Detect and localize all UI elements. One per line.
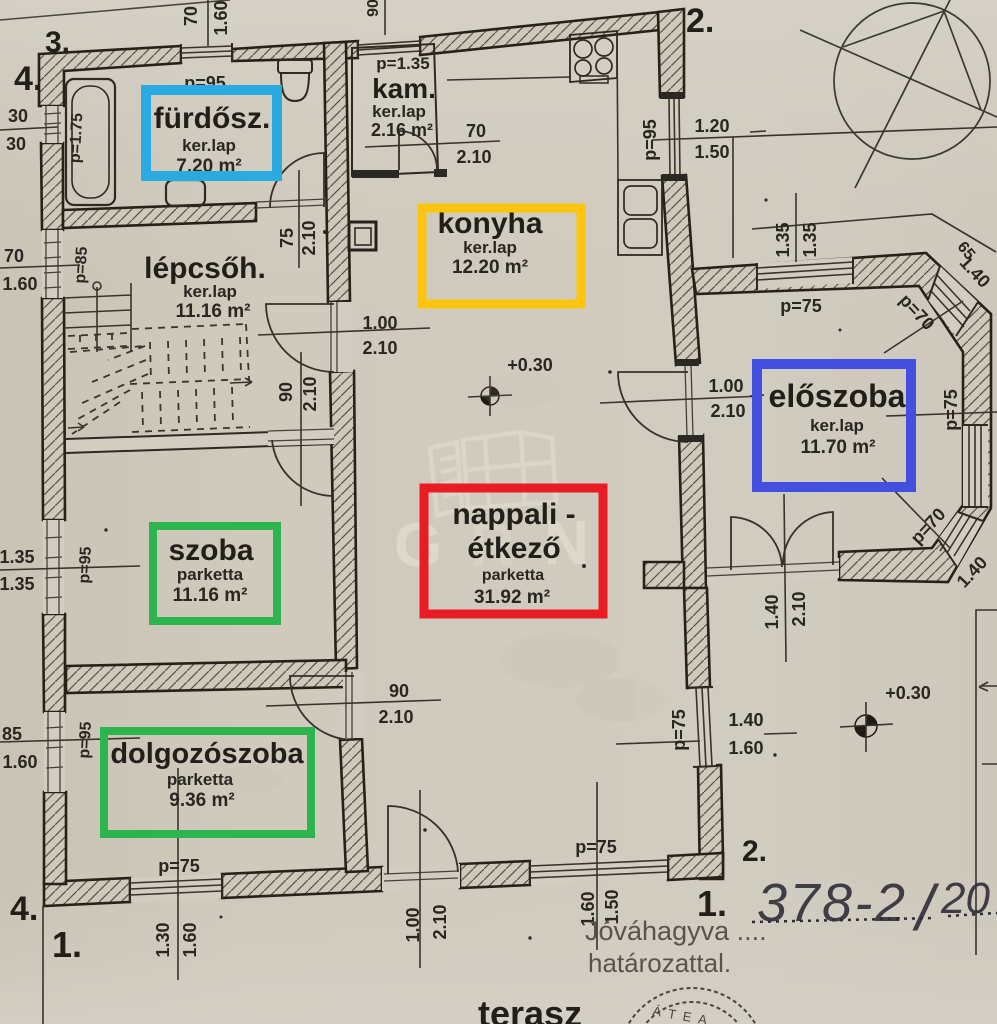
svg-text:+0.30: +0.30 <box>507 355 553 375</box>
svg-text:1.: 1. <box>52 924 82 965</box>
svg-text:p=95: p=95 <box>640 119 660 161</box>
svg-text:11.16 m²: 11.16 m² <box>173 585 248 606</box>
svg-text:lépcsőh.: lépcsőh. <box>144 252 266 285</box>
svg-text:parketta: parketta <box>177 565 244 584</box>
svg-text:85: 85 <box>2 724 22 744</box>
svg-text:2.10: 2.10 <box>456 147 491 167</box>
svg-text:2.10: 2.10 <box>789 591 809 626</box>
svg-text:parketta: parketta <box>482 567 544 584</box>
svg-text:1.30: 1.30 <box>153 922 173 957</box>
svg-text:határozattal.: határozattal. <box>588 948 731 978</box>
svg-text:1.60: 1.60 <box>2 752 37 772</box>
svg-text:70: 70 <box>4 246 24 266</box>
svg-text:fürdősz.: fürdősz. <box>154 102 271 135</box>
svg-text:étkező: étkező <box>467 532 560 565</box>
svg-text:2.10: 2.10 <box>300 376 320 411</box>
svg-text:nappali -: nappali - <box>452 498 575 531</box>
svg-text:378-2: 378-2 <box>757 873 905 933</box>
svg-text:kam.: kam. <box>372 73 436 104</box>
svg-text:p=75: p=75 <box>669 709 689 751</box>
svg-text:3.: 3. <box>45 26 70 59</box>
svg-text:G: G <box>394 511 442 580</box>
svg-text:ker.lap: ker.lap <box>183 282 237 301</box>
svg-text:dolgozószoba: dolgozószoba <box>110 738 304 770</box>
svg-text:1.00: 1.00 <box>403 907 423 942</box>
svg-text:1.40: 1.40 <box>762 594 782 629</box>
svg-text:p=1.35: p=1.35 <box>376 54 429 73</box>
svg-text:2.10: 2.10 <box>299 220 319 255</box>
svg-text:terasz: terasz <box>478 993 582 1024</box>
svg-text:2.10: 2.10 <box>378 707 413 727</box>
svg-text:70: 70 <box>181 6 201 26</box>
svg-text:1.00: 1.00 <box>362 313 397 333</box>
svg-text:p=95: p=95 <box>76 721 95 759</box>
svg-text:31.92 m²: 31.92 m² <box>474 587 550 608</box>
svg-text:p=75: p=75 <box>941 389 961 431</box>
svg-text:9.36 m²: 9.36 m² <box>169 790 234 811</box>
svg-text:2.16 m²: 2.16 m² <box>371 120 433 140</box>
svg-text:11.16 m²: 11.16 m² <box>176 301 251 322</box>
svg-text:1.40: 1.40 <box>728 710 763 730</box>
svg-text:p=95: p=95 <box>76 546 95 584</box>
svg-text:ker.lap: ker.lap <box>463 238 517 257</box>
svg-text:p=1.75: p=1.75 <box>67 112 87 163</box>
svg-text:1.60: 1.60 <box>180 922 200 957</box>
svg-text:30: 30 <box>6 134 26 154</box>
svg-text:75: 75 <box>277 228 297 248</box>
svg-text:1.35: 1.35 <box>773 222 793 257</box>
svg-text:1.60: 1.60 <box>728 738 763 758</box>
svg-text:előszoba: előszoba <box>769 378 906 414</box>
svg-text:Jóváhagyva ....: Jóváhagyva .... <box>585 916 767 946</box>
svg-text:1.35: 1.35 <box>0 574 35 594</box>
svg-text:2.: 2. <box>686 2 714 40</box>
svg-text:1.50: 1.50 <box>694 142 729 162</box>
svg-text:1.20: 1.20 <box>694 116 729 136</box>
svg-text:2.: 2. <box>742 835 767 868</box>
svg-text:90: 90 <box>365 0 382 17</box>
svg-text:p=75: p=75 <box>575 837 617 857</box>
svg-text:4.: 4. <box>10 890 38 928</box>
svg-text:ker.lap: ker.lap <box>372 102 426 121</box>
svg-text:ker.lap: ker.lap <box>810 416 864 435</box>
svg-text:ker.lap: ker.lap <box>182 136 236 155</box>
svg-text:1.60: 1.60 <box>2 274 37 294</box>
svg-text:1.00: 1.00 <box>708 376 743 396</box>
svg-text:70: 70 <box>466 121 486 141</box>
svg-text:p=75: p=75 <box>780 296 822 316</box>
svg-text:1.60: 1.60 <box>211 0 231 35</box>
svg-text:4.: 4. <box>14 60 42 98</box>
svg-text:12.20 m²: 12.20 m² <box>452 257 528 278</box>
svg-text:30: 30 <box>8 106 28 126</box>
svg-text:+0.30: +0.30 <box>885 683 931 703</box>
svg-text:90: 90 <box>389 681 409 701</box>
svg-text:1.35: 1.35 <box>800 222 820 257</box>
svg-text:90: 90 <box>276 382 296 402</box>
svg-text:p=85: p=85 <box>72 246 91 284</box>
svg-text:szoba: szoba <box>168 534 253 567</box>
svg-text:1.35: 1.35 <box>0 547 35 567</box>
svg-text:parketta: parketta <box>167 770 234 789</box>
svg-text:11.70 m²: 11.70 m² <box>801 437 876 458</box>
svg-text:2.10: 2.10 <box>430 904 450 939</box>
svg-text:p=75: p=75 <box>158 856 200 876</box>
svg-text:2.10: 2.10 <box>710 401 745 421</box>
svg-text:2.10: 2.10 <box>362 338 397 358</box>
